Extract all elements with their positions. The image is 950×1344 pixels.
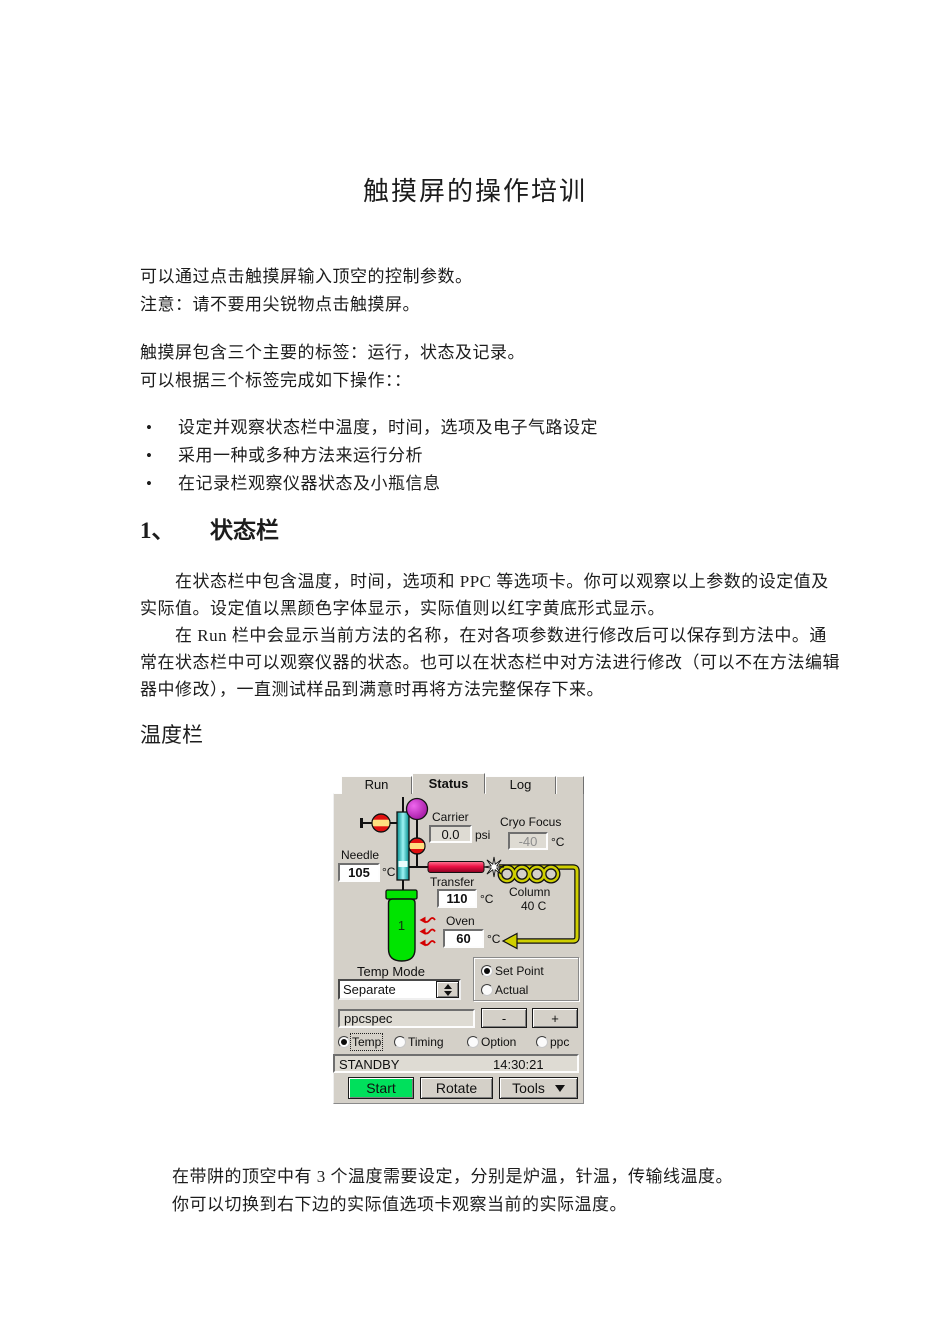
option-radio[interactable] [467, 1036, 479, 1048]
carrier-unit: psi [475, 828, 490, 842]
bullet-icon: • [146, 418, 178, 438]
section-number: 1、 [140, 511, 210, 545]
bullet-text: 设定并观察状态栏中温度，时间，选项及电子气路设定 [178, 418, 598, 437]
spinner-up-icon [444, 984, 452, 989]
timing-radio[interactable] [394, 1036, 406, 1048]
bullet-item: •采用一种或多种方法来运行分析 [146, 441, 423, 466]
carrier-label: Carrier [432, 810, 469, 824]
carrier-pressure-field[interactable]: 0.0 [429, 825, 472, 843]
section-title: 状态栏 [210, 518, 279, 543]
oven-temp-field[interactable]: 60 [443, 929, 484, 948]
ppc-radio[interactable] [536, 1036, 548, 1048]
transfer-unit: °C [480, 892, 493, 906]
vial-number: 1 [388, 918, 415, 933]
actual-radio[interactable] [481, 984, 493, 996]
transfer-temp-field[interactable]: 110 [437, 889, 477, 908]
setpoint-radio[interactable] [481, 965, 493, 977]
setpoint-radio-row[interactable]: Set Point [481, 964, 544, 978]
rotate-button[interactable]: Rotate [420, 1077, 493, 1099]
intro-line: 可以通过点击触摸屏输入顶空的控制参数。 [140, 262, 473, 287]
cryo-focus-unit: °C [551, 835, 564, 849]
section-heading: 1、状态栏 [140, 511, 279, 545]
needle-temp-field[interactable]: 105 [338, 863, 380, 882]
tools-button[interactable]: Tools [499, 1077, 578, 1099]
oven-unit: °C [487, 932, 500, 946]
display-mode-group: Set Point Actual [473, 957, 579, 1001]
needle-label: Needle [341, 848, 379, 862]
option-radio-label: Option [481, 1035, 516, 1049]
temp-mode-label: Temp Mode [357, 964, 425, 979]
column-label: Column [509, 885, 550, 899]
document-page: 触摸屏的操作培训 可以通过点击触摸屏输入顶空的控制参数。 注意：请不要用尖锐物点… [0, 0, 950, 1344]
oven-label: Oven [446, 914, 475, 928]
column-temp-value: 40 C [521, 899, 546, 913]
intro-line: 注意：请不要用尖锐物点击触摸屏。 [140, 290, 420, 315]
bullet-item: •设定并观察状态栏中温度，时间，选项及电子气路设定 [146, 413, 598, 438]
category-radio-ppc[interactable]: ppc [536, 1035, 569, 1049]
cryo-focus-field[interactable]: -40 [508, 832, 548, 850]
footer-line: 在带阱的顶空中有 3 个温度需要设定，分别是炉温，针温，传输线温度。 [172, 1162, 733, 1187]
tabs-desc-line: 可以根据三个标签完成如下操作：： [140, 366, 412, 391]
temp-mode-spinner[interactable] [436, 981, 459, 998]
bullet-icon: • [146, 474, 178, 494]
status-bar: STANDBY 14:30:21 [333, 1054, 579, 1073]
setpoint-label: Set Point [495, 964, 544, 978]
tools-button-label: Tools [512, 1080, 545, 1096]
temp-mode-select[interactable]: Separate [338, 979, 461, 1000]
actual-label: Actual [495, 983, 528, 997]
category-radio-timing[interactable]: Timing [394, 1035, 444, 1049]
body-line: 在状态栏中包含温度，时间，选项和 PPC 等选项卡。你可以观察以上参数的设定值及 [175, 567, 829, 592]
ppc-radio-label: ppc [550, 1035, 569, 1049]
instrument-panel: Run Status Log [333, 773, 585, 1105]
clock-time: 14:30:21 [493, 1057, 544, 1072]
caret-down-icon [555, 1085, 565, 1092]
category-radio-option[interactable]: Option [467, 1035, 516, 1049]
temp-mode-value: Separate [340, 981, 436, 998]
sub-heading: 温度栏 [140, 719, 203, 749]
tab-run[interactable]: Run [341, 776, 412, 794]
timing-radio-label: Timing [408, 1035, 444, 1049]
body-line: 器中修改），一直测试样品到满意时再将方法完整保存下来。 [140, 675, 604, 700]
instrument-state: STANDBY [339, 1057, 399, 1072]
category-radio-temp[interactable]: Temp [338, 1035, 381, 1049]
tab-log[interactable]: Log [485, 776, 556, 794]
bullet-text: 采用一种或多种方法来运行分析 [178, 446, 423, 465]
transfer-label: Transfer [430, 875, 474, 889]
temp-radio-label: Temp [352, 1035, 381, 1049]
body-line: 实际值。设定值以黑颜色字体显示，实际值则以红字黄底形式显示。 [140, 594, 665, 619]
bullet-item: •在记录栏观察仪器状态及小瓶信息 [146, 469, 441, 494]
needle-unit: °C [382, 865, 395, 879]
decrement-button[interactable]: - [481, 1008, 527, 1028]
page-title: 触摸屏的操作培训 [0, 171, 950, 208]
footer-line: 你可以切换到右下边的实际值选项卡观察当前的实际温度。 [172, 1190, 627, 1215]
temp-radio[interactable] [338, 1036, 350, 1048]
spinner-down-icon [444, 991, 452, 996]
bullet-icon: • [146, 446, 178, 466]
body-line: 常在状态栏中可以观察仪器的状态。也可以在状态栏中对方法进行修改（可以不在方法编辑 [140, 648, 840, 673]
body-line: 在 Run 栏中会显示当前方法的名称，在对各项参数进行修改后可以保存到方法中。通 [175, 621, 827, 646]
increment-button[interactable]: + [532, 1008, 578, 1028]
cryo-focus-label: Cryo Focus [500, 815, 561, 829]
start-button[interactable]: Start [348, 1077, 414, 1099]
tab-strip-filler [556, 776, 584, 794]
tabs-desc-line: 触摸屏包含三个主要的标签：运行，状态及记录。 [140, 338, 525, 363]
method-name-field[interactable]: ppcspec [338, 1009, 475, 1028]
tab-status[interactable]: Status [412, 773, 485, 794]
actual-radio-row[interactable]: Actual [481, 983, 528, 997]
bullet-text: 在记录栏观察仪器状态及小瓶信息 [178, 474, 441, 493]
